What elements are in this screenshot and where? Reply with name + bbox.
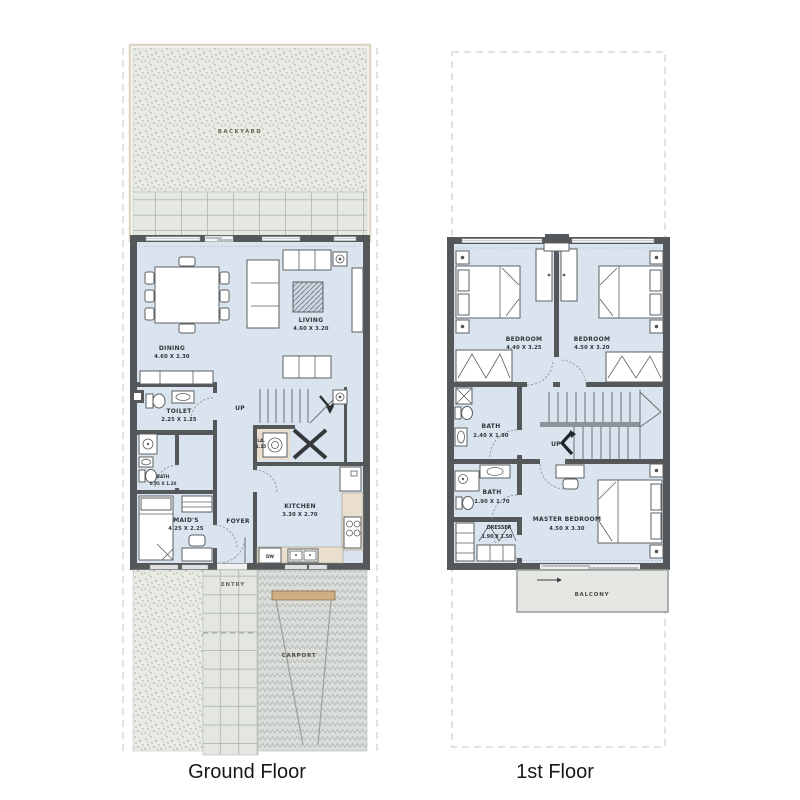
wc-icon bbox=[455, 407, 461, 419]
toilet-label: TOILET bbox=[166, 408, 192, 415]
laundry-dims: 1.15 bbox=[256, 444, 266, 449]
sideboard bbox=[140, 371, 213, 384]
bedroom-right-label: BEDROOM bbox=[574, 336, 611, 343]
frontyard-area: ENTRY CARPORT bbox=[133, 570, 367, 755]
balcony-label: BALCONY bbox=[575, 592, 610, 598]
backyard-label: BACKYARD bbox=[218, 129, 262, 135]
bath-bottom-label: BATH bbox=[482, 489, 501, 496]
ground-floor-title: Ground Floor bbox=[188, 761, 306, 783]
entry-door-opening bbox=[217, 564, 247, 570]
sofa-bottom bbox=[283, 356, 331, 378]
sofa-side bbox=[247, 260, 279, 328]
maids-label: MAID'S bbox=[173, 517, 199, 524]
desk-icon bbox=[556, 465, 584, 478]
first-floor-title: 1st Floor bbox=[516, 761, 594, 783]
dw-label: DW bbox=[266, 554, 274, 559]
bedroom-right-dims: 4.50 X 3.20 bbox=[574, 345, 610, 351]
maids-dims: 4.25 X 2.25 bbox=[168, 526, 204, 532]
frontyard-gravel bbox=[133, 570, 203, 751]
master-label: MASTER BEDROOM bbox=[533, 516, 601, 523]
kitchen-label: KITCHEN bbox=[284, 503, 316, 510]
ground-floor-plan: BACKYARD bbox=[123, 45, 377, 755]
backyard-gravel bbox=[133, 48, 367, 192]
gf-up-label: UP bbox=[235, 405, 245, 412]
sink-icon bbox=[172, 391, 194, 403]
floorplan-canvas: BACKYARD bbox=[0, 0, 800, 800]
wardrobe-icon bbox=[456, 350, 512, 382]
chair-icon bbox=[189, 535, 205, 546]
wardrobe-icon bbox=[456, 523, 474, 561]
carport-beam bbox=[272, 591, 335, 600]
carport-label: CARPORT bbox=[282, 653, 317, 659]
rug bbox=[293, 282, 323, 312]
sofa-top bbox=[283, 250, 331, 270]
gf-bath-dims: 0.95 X 1.20 bbox=[150, 481, 177, 486]
bath-top-label: BATH bbox=[481, 423, 500, 430]
balcony-deck bbox=[517, 570, 668, 612]
ff-up-label: UP bbox=[551, 441, 561, 448]
bath-bottom-dims: 1.90 X 1.70 bbox=[474, 499, 510, 505]
living-label: LIVING bbox=[299, 317, 324, 324]
first-floor-plan: UP BEDROOM 4.40 X 3.25 bbox=[447, 52, 670, 747]
vanity-icon bbox=[480, 465, 510, 478]
desk-icon bbox=[182, 548, 212, 561]
bedroom-left-dims: 4.40 X 3.25 bbox=[506, 345, 542, 351]
speaker-icon bbox=[333, 390, 347, 404]
dresser-dims: 1.90 X 1.50 bbox=[482, 534, 513, 540]
foyer-label: FOYER bbox=[226, 518, 250, 525]
laundry-label: LA. bbox=[257, 438, 265, 443]
master-dims: 4.50 X 3.30 bbox=[549, 526, 585, 532]
backyard-sliding-door bbox=[205, 236, 233, 242]
dining-table bbox=[155, 267, 219, 323]
wardrobe-icon bbox=[182, 496, 212, 512]
dining-label: DINING bbox=[159, 345, 185, 352]
balcony-area: BALCONY bbox=[517, 570, 668, 612]
wc-icon bbox=[456, 497, 462, 509]
entry-label: ENTRY bbox=[221, 582, 245, 588]
stair-rail bbox=[540, 422, 640, 427]
kitchen-dims: 3.30 X 2.70 bbox=[282, 512, 318, 518]
bedroom-left-label: BEDROOM bbox=[506, 336, 543, 343]
dining-dims: 4.60 X 2.30 bbox=[154, 354, 190, 360]
entry-walkway bbox=[203, 570, 258, 755]
tv-console bbox=[352, 268, 363, 332]
wc-icon bbox=[146, 394, 153, 408]
floorplan-page: BACKYARD bbox=[0, 0, 800, 800]
fridge-icon bbox=[340, 467, 361, 491]
living-dims: 4.60 X 3.20 bbox=[293, 326, 329, 332]
backyard-area: BACKYARD bbox=[130, 45, 370, 241]
bath-top-dims: 2.40 X 1.90 bbox=[473, 433, 509, 439]
toilet-dims: 2.25 X 1.25 bbox=[161, 417, 197, 423]
backyard-tiles bbox=[133, 192, 367, 238]
chair-icon bbox=[563, 479, 578, 489]
dresser-label: DRESSER bbox=[487, 525, 512, 531]
wc-icon bbox=[139, 470, 145, 482]
dresser-unit bbox=[477, 545, 515, 561]
gf-bath-label: BATH bbox=[157, 474, 170, 479]
speaker-icon bbox=[333, 252, 347, 266]
washing-machine-icon bbox=[263, 433, 287, 457]
